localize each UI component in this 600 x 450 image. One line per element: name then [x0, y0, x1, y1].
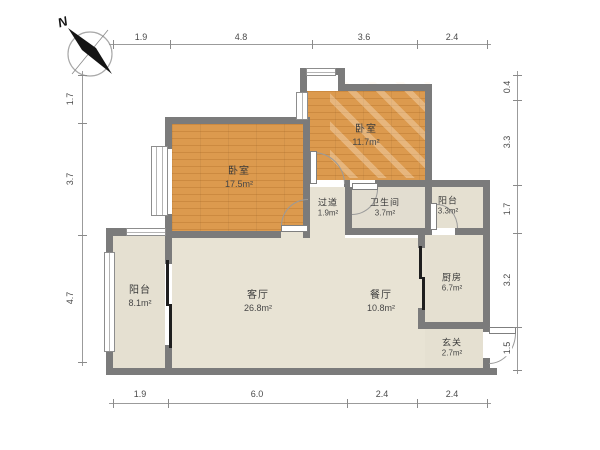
- dim-tick: [513, 100, 522, 101]
- dim-tick: [513, 327, 522, 328]
- dim-tick: [78, 362, 87, 363]
- wall: [418, 228, 425, 248]
- room-area: 11.7m²: [352, 137, 379, 148]
- room-area: 17.5m²: [225, 179, 253, 190]
- wall: [455, 228, 483, 235]
- room-area: 6.7m²: [442, 284, 462, 294]
- room-label-bedroom-top: 卧室 11.7m²: [352, 124, 379, 148]
- dim-value: 1.5: [502, 340, 512, 357]
- dimension-line-bottom: [109, 403, 491, 404]
- north-needle-icon: [68, 28, 112, 74]
- room-area: 1.9m²: [318, 209, 338, 219]
- dimension-line-left: [82, 71, 83, 366]
- door-leaf: [352, 183, 378, 190]
- dim-tick: [347, 399, 348, 408]
- room-area: 3.7m²: [370, 209, 400, 219]
- door-leaf: [430, 203, 437, 230]
- room-name: 阳台: [128, 285, 151, 298]
- wall: [418, 322, 483, 329]
- sliding-door: [166, 260, 169, 306]
- dimension-line-top: [109, 44, 491, 45]
- sliding-door: [169, 304, 172, 348]
- dim-value: 3.2: [502, 272, 512, 289]
- dim-tick: [113, 40, 114, 49]
- wall: [345, 228, 425, 235]
- room-label-dining: 餐厅 10.8m²: [367, 290, 395, 314]
- wall: [165, 117, 310, 124]
- dimension-line-right: [517, 71, 518, 374]
- dim-tick: [513, 233, 522, 234]
- dim-tick: [487, 40, 488, 49]
- dim-tick: [417, 399, 418, 408]
- wall: [375, 180, 432, 187]
- door-leaf: [310, 151, 317, 184]
- dim-value: 4.8: [233, 32, 250, 42]
- dim-value: 6.0: [249, 389, 266, 399]
- room-label-corridor: 过道 1.9m²: [318, 197, 338, 218]
- dim-tick: [113, 399, 114, 408]
- dim-tick: [78, 235, 87, 236]
- wall: [165, 117, 172, 149]
- window: [296, 92, 308, 120]
- room-name: 卧室: [352, 124, 379, 137]
- dim-tick: [78, 75, 87, 76]
- wall: [425, 84, 432, 187]
- room-area: 8.1m²: [128, 298, 151, 309]
- dim-value: 2.4: [444, 32, 461, 42]
- dim-tick: [513, 75, 522, 76]
- room-label-foyer: 玄关 2.7m²: [442, 337, 462, 358]
- room-label-bedroom-left: 卧室 17.5m²: [225, 166, 253, 190]
- dim-tick: [513, 370, 522, 371]
- dim-tick: [312, 40, 313, 49]
- room-label-bathroom: 卫生间 3.7m²: [370, 197, 400, 218]
- compass: N: [56, 12, 128, 90]
- room-name: 客厅: [244, 290, 272, 303]
- sliding-door: [419, 246, 422, 279]
- bay-window: [151, 146, 168, 216]
- dim-value: 3.7: [65, 171, 75, 188]
- room-name: 过道: [318, 197, 338, 208]
- dim-tick: [487, 399, 488, 408]
- door-leaf: [281, 225, 308, 232]
- wall: [338, 84, 432, 91]
- entry-door-leaf: [489, 327, 516, 334]
- dim-value: 3.6: [356, 32, 373, 42]
- dim-value: 2.4: [374, 389, 391, 399]
- wall: [106, 228, 113, 254]
- wall: [165, 231, 281, 238]
- dim-value: 2.4: [444, 389, 461, 399]
- dim-value: 4.7: [65, 290, 75, 307]
- wall: [483, 180, 490, 332]
- floor-plan-canvas: N: [0, 0, 600, 450]
- room-area: 2.7m²: [442, 349, 462, 359]
- balcony-window: [104, 252, 115, 352]
- room-area: 10.8m²: [367, 303, 395, 314]
- room-label-balcony-large: 阳台 8.1m²: [128, 285, 151, 309]
- wall: [165, 214, 172, 264]
- room-label-kitchen: 厨房 6.7m²: [442, 272, 462, 293]
- room-name: 玄关: [442, 337, 462, 348]
- wall: [106, 368, 497, 375]
- dim-value: 3.3: [502, 134, 512, 151]
- dim-value: 1.9: [132, 389, 149, 399]
- room-name: 卧室: [225, 166, 253, 179]
- room-label-balcony-small: 阳台 3.3m²: [438, 195, 458, 216]
- dim-value: 1.7: [65, 91, 75, 108]
- dim-tick: [170, 40, 171, 49]
- dim-tick: [168, 399, 169, 408]
- room-name: 餐厅: [367, 290, 395, 303]
- dim-tick: [78, 123, 87, 124]
- dim-value: 1.9: [133, 32, 150, 42]
- dim-value: 1.7: [502, 201, 512, 218]
- room-area: 3.3m²: [438, 207, 458, 217]
- window: [126, 228, 166, 236]
- dim-tick: [513, 185, 522, 186]
- room-name: 阳台: [438, 195, 458, 206]
- compass-north-label: N: [56, 13, 70, 30]
- room-label-living: 客厅 26.8m²: [244, 290, 272, 314]
- room-name: 厨房: [442, 272, 462, 283]
- sliding-door: [422, 277, 425, 310]
- wall: [432, 180, 490, 187]
- room-area: 26.8m²: [244, 303, 272, 314]
- dim-tick: [417, 40, 418, 49]
- room-name: 卫生间: [370, 197, 400, 208]
- window: [306, 68, 336, 76]
- dim-value: 0.4: [502, 79, 512, 96]
